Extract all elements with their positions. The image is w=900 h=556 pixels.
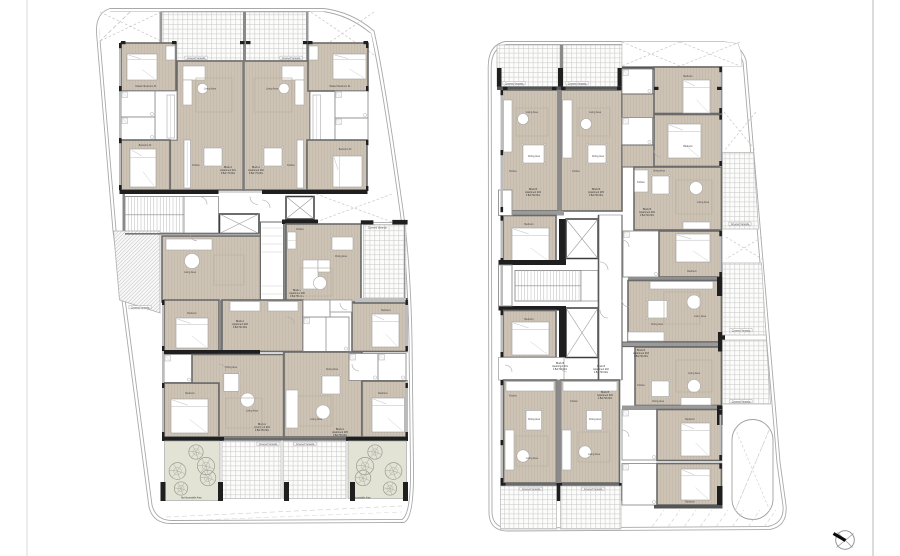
svg-text:1 Bdr 50.40m: 1 Bdr 50.40m	[233, 326, 247, 329]
svg-text:Kitchen: Kitchen	[570, 400, 578, 403]
svg-text:Not Accessible Area: Not Accessible Area	[181, 496, 202, 499]
svg-text:Bedroom: Bedroom	[685, 501, 694, 504]
svg-text:Bedroom: Bedroom	[683, 75, 692, 78]
svg-text:1 Bdr 55.00m: 1 Bdr 55.00m	[255, 429, 269, 432]
svg-text:1 Bdr 50.00m: 1 Bdr 50.00m	[598, 397, 612, 400]
svg-text:Covered Veranda: Covered Veranda	[259, 443, 278, 446]
svg-text:1 Bdr 50.00m: 1 Bdr 50.00m	[640, 214, 654, 217]
svg-text:Living Area: Living Area	[310, 418, 322, 421]
svg-text:Covered Veranda: Covered Veranda	[568, 82, 587, 85]
svg-text:Dining Area: Dining Area	[592, 155, 605, 158]
svg-text:Covered Veranda: Covered Veranda	[368, 226, 387, 229]
svg-text:Dining Area: Dining Area	[528, 155, 541, 158]
svg-text:1 Bdr 50.00m: 1 Bdr 50.00m	[553, 368, 567, 371]
svg-text:1 Bdr 55.00m: 1 Bdr 55.00m	[333, 434, 347, 437]
svg-text:1 Bdr 50.00m: 1 Bdr 50.00m	[526, 194, 540, 197]
svg-text:Dining Area: Dining Area	[225, 366, 238, 369]
svg-text:1 Bdr 50.00m: 1 Bdr 50.00m	[589, 194, 603, 197]
svg-text:Bedroom: Bedroom	[685, 418, 694, 421]
svg-text:Living Area: Living Area	[266, 88, 278, 91]
svg-text:Covered Veranda: Covered Veranda	[282, 57, 301, 60]
svg-text:Kitchen: Kitchen	[572, 170, 580, 173]
svg-text:Master Bedroom 01: Master Bedroom 01	[330, 85, 352, 88]
svg-text:2 Bdr 73.00m: 2 Bdr 73.00m	[221, 172, 235, 175]
svg-text:Dining Area: Dining Area	[326, 368, 339, 371]
svg-text:Dining Area: Dining Area	[589, 418, 602, 421]
svg-text:Bedroom: Bedroom	[524, 223, 533, 226]
svg-text:Bedroom: Bedroom	[687, 270, 696, 273]
svg-text:1 Bdr 50.00m: 1 Bdr 50.00m	[634, 355, 648, 358]
svg-text:Master Bedroom 01: Master Bedroom 01	[136, 85, 158, 88]
svg-text:Dining Area: Dining Area	[653, 170, 666, 173]
svg-text:Kitchen: Kitchen	[192, 164, 200, 167]
svg-text:Living Area: Living Area	[526, 111, 538, 114]
svg-text:Dining Area: Dining Area	[528, 418, 541, 421]
svg-text:Living Area: Living Area	[184, 271, 196, 274]
svg-text:Covered Veranda: Covered Veranda	[731, 223, 750, 226]
svg-text:Kitchen: Kitchen	[287, 164, 295, 167]
svg-text:Kitchen: Kitchen	[296, 228, 304, 231]
svg-text:Living Area: Living Area	[589, 111, 601, 114]
svg-text:Covered Veranda: Covered Veranda	[296, 443, 315, 446]
svg-text:Bedroom: Bedroom	[524, 318, 533, 321]
svg-text:Dining Area: Dining Area	[652, 400, 665, 403]
svg-text:Kitchen: Kitchen	[509, 395, 517, 398]
svg-text:1 Bdr 50.00m: 1 Bdr 50.00m	[594, 371, 608, 374]
svg-text:Dining Area: Dining Area	[651, 323, 664, 326]
svg-text:Covered Veranda: Covered Veranda	[505, 82, 524, 85]
svg-text:Living Area: Living Area	[204, 88, 216, 91]
svg-text:Living Area: Living Area	[526, 457, 538, 460]
svg-text:Covered Veranda: Covered Veranda	[584, 488, 603, 491]
svg-text:Bedroom: Bedroom	[381, 309, 390, 312]
svg-text:Living Area: Living Area	[588, 453, 600, 456]
svg-text:Covered Veranda: Covered Veranda	[187, 57, 206, 60]
svg-text:Living Area: Living Area	[246, 410, 258, 413]
svg-text:Bedroom 02: Bedroom 02	[139, 144, 152, 147]
svg-text:Bedroom: Bedroom	[683, 145, 692, 148]
svg-text:Covered Veranda: Covered Veranda	[522, 488, 541, 491]
svg-text:Bedroom: Bedroom	[378, 392, 387, 395]
svg-text:Covered Veranda: Covered Veranda	[732, 400, 751, 403]
svg-text:Kitchen: Kitchen	[637, 181, 645, 184]
svg-text:Kitchen: Kitchen	[509, 170, 517, 173]
svg-text:Bedroom: Bedroom	[185, 392, 194, 395]
svg-text:2 Bdr 73.00m: 2 Bdr 73.00m	[249, 172, 263, 175]
svg-text:Bedroom: Bedroom	[187, 312, 196, 315]
svg-text:Kitchen: Kitchen	[637, 384, 645, 387]
svg-text:Bedroom 02: Bedroom 02	[339, 148, 352, 151]
svg-text:Dining Area: Dining Area	[335, 255, 348, 258]
svg-text:Living Area: Living Area	[688, 372, 700, 375]
svg-text:Covered Veranda: Covered Veranda	[732, 329, 751, 332]
svg-text:Covered Veranda: Covered Veranda	[131, 306, 150, 309]
svg-text:Living Area: Living Area	[697, 201, 709, 204]
